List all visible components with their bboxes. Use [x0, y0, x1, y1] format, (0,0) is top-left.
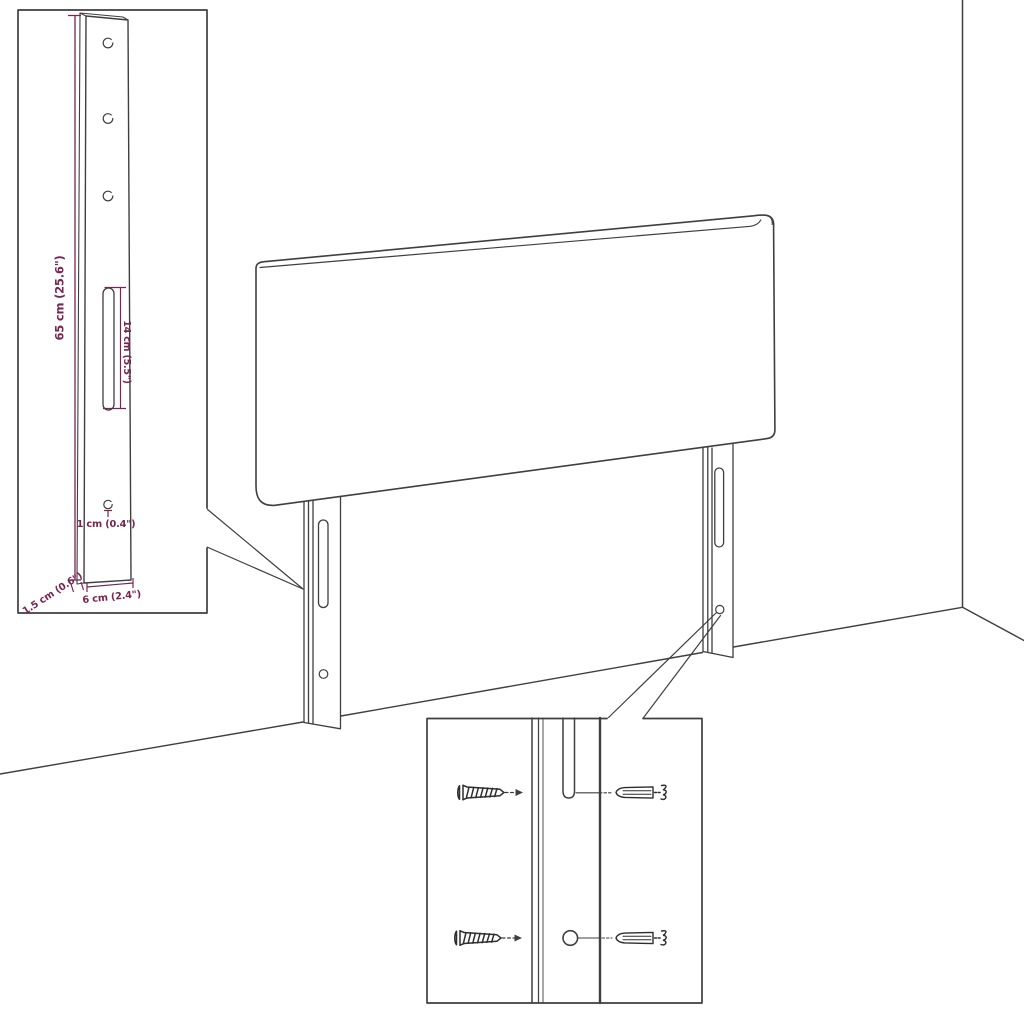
callout-box-bottom-fill: [427, 718, 702, 1003]
enlarged-leg-hole-3: [103, 191, 113, 201]
dimension-hole-label: 1 cm (0.4"): [77, 519, 136, 530]
right-leg-slot: [715, 468, 724, 547]
floor-line-right: [963, 607, 1024, 640]
enlarged-leg: [77, 13, 131, 584]
headboard-panel: [256, 215, 775, 505]
left-leg-slot: [319, 520, 329, 608]
dimension-height-label: 65 cm (25.6"): [53, 255, 67, 340]
left-leg-screw-hole: [319, 670, 328, 679]
leg-strip-hole: [563, 931, 578, 946]
headboard-leg-right: [703, 438, 734, 658]
enlarged-leg-bottom-hole: [104, 500, 112, 508]
product-diagram: 65 cm (25.6") 14 cm (5.5") 1 cm (0.4") 6…: [0, 0, 1024, 1024]
enlarged-leg-slot: [103, 288, 114, 410]
callout-leader-lines-left: [207, 509, 303, 589]
headboard-mounting-diagram: 65 cm (25.6") 14 cm (5.5") 1 cm (0.4") 6…: [0, 0, 1024, 1024]
dimension-slot-label: 14 cm (5.5"): [121, 320, 132, 383]
panel-outline: [256, 215, 775, 505]
right-leg-screw-hole: [716, 605, 724, 613]
enlarged-leg-hole-2: [103, 114, 113, 124]
enlarged-leg-hole-1: [103, 38, 113, 48]
headboard-leg-left: [304, 492, 342, 730]
detail-callout-mounting: [427, 613, 721, 1003]
